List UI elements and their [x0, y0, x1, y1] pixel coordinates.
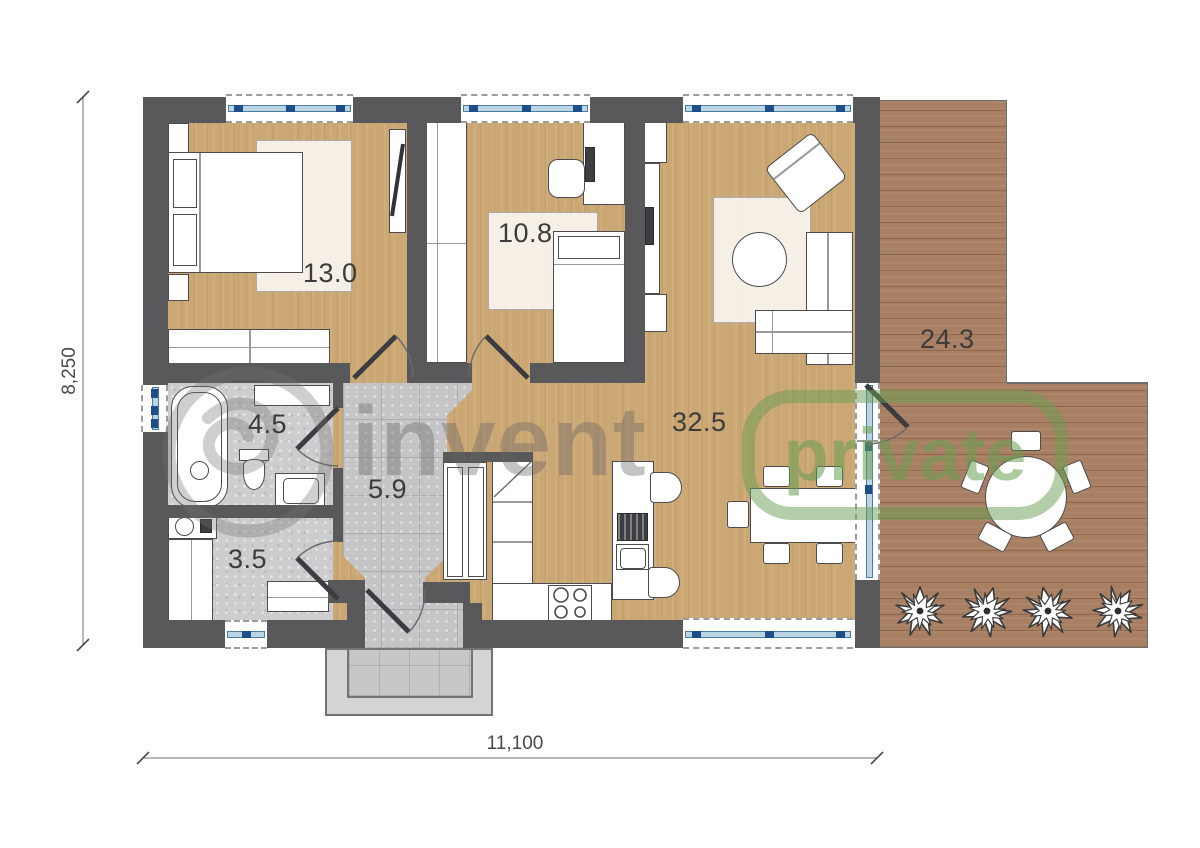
bathtub [171, 386, 228, 508]
wall-bath-hall-1 [333, 383, 343, 408]
media-cabinet-top [642, 122, 667, 163]
washer-drum [175, 517, 194, 536]
sofa-seat-section [755, 310, 853, 354]
wall-bath-utility [143, 505, 343, 518]
window-utility [225, 620, 267, 649]
floor-plan-canvas: invent private 13.0 10.8 32.5 24.3 4.5 5… [0, 0, 1200, 848]
sink-basin [283, 478, 319, 504]
kitchen-sink [616, 544, 649, 570]
nightstand [168, 274, 189, 301]
bathroom-vanity [275, 473, 325, 507]
toilet-bowl [243, 459, 265, 490]
wall-bottom-3 [482, 620, 683, 648]
bar-stool [648, 567, 680, 598]
bathtub-drain [190, 461, 209, 480]
living-tv [645, 207, 654, 245]
wall-right-upper [855, 97, 880, 383]
wall-closet-stub [443, 452, 533, 462]
bedroom-sideboard [168, 329, 330, 364]
coffee-table [732, 232, 787, 287]
wall-bottom-1 [143, 620, 225, 648]
media-cabinet-bottom [642, 294, 667, 332]
entry-wall-right-vertical [463, 603, 482, 648]
area-label-utility: 3.5 [228, 544, 267, 575]
wall-left-lower [143, 432, 168, 648]
dining-chair [727, 501, 749, 528]
pillow [173, 214, 197, 266]
entry-wall-left-stub [328, 580, 365, 603]
dining-chair [816, 543, 843, 564]
stove [548, 585, 592, 621]
entry-wall-right-stub [423, 582, 470, 603]
entry-porch-step [347, 648, 473, 698]
utility-shelf [267, 581, 329, 612]
desk-chair [548, 159, 585, 198]
bedroom-tv-panel [389, 129, 406, 233]
area-label-hallway: 5.9 [368, 474, 407, 505]
desk-monitor [585, 147, 595, 182]
bathroom-shelf [254, 385, 330, 406]
dining-chair [763, 543, 790, 564]
utility-cabinet [168, 539, 213, 622]
dimension-label-horizontal: 11,100 [455, 733, 575, 755]
nightstand [168, 123, 189, 153]
bar-stool [650, 472, 682, 503]
wall-bottom-2 [267, 620, 347, 648]
area-label-terrace: 24.3 [920, 324, 975, 355]
wall-right-corner [855, 580, 880, 648]
window-bathroom [141, 385, 168, 432]
area-label-bathroom: 4.5 [248, 409, 287, 440]
window-childroom [461, 94, 590, 123]
area-label-childroom: 10.8 [498, 218, 553, 249]
terrace-step-edge [1007, 382, 1148, 384]
blanket-edge [199, 153, 201, 272]
dining-table [750, 488, 857, 543]
sink-basin [620, 548, 646, 569]
washer-panel [200, 519, 212, 533]
dimension-label-vertical: 8,250 [59, 321, 81, 421]
window-glass [866, 385, 873, 578]
single-bed [553, 231, 625, 363]
window-living-south [683, 618, 853, 649]
wall-left-upper [143, 97, 168, 385]
dining-chair [816, 466, 843, 487]
wall-childroom-living [625, 97, 645, 363]
hall-closet [443, 462, 487, 580]
area-label-bedroom: 13.0 [303, 258, 358, 289]
window-bedroom [226, 94, 353, 123]
terrace-glass-door-wall [855, 383, 880, 580]
pillow [173, 159, 197, 208]
bathtub-inner [177, 392, 222, 502]
double-bed [168, 152, 303, 273]
terrace-chair [1011, 431, 1041, 451]
wall-bedroom-childroom [407, 97, 427, 383]
closet-door [468, 467, 484, 577]
wall-childroom-south-2 [530, 363, 645, 383]
wall-bedroom-south [143, 363, 350, 383]
area-label-living: 32.5 [672, 407, 727, 438]
dining-chair [763, 466, 790, 487]
childroom-wardrobe [424, 122, 467, 363]
door-frame-divider [857, 440, 878, 442]
entry-wall-left-vertical [347, 603, 365, 648]
wall-childroom-south-1 [427, 363, 472, 383]
pillow [558, 236, 620, 259]
closet-door [447, 467, 463, 577]
window-living-north [683, 94, 853, 123]
dishwasher [617, 513, 648, 541]
